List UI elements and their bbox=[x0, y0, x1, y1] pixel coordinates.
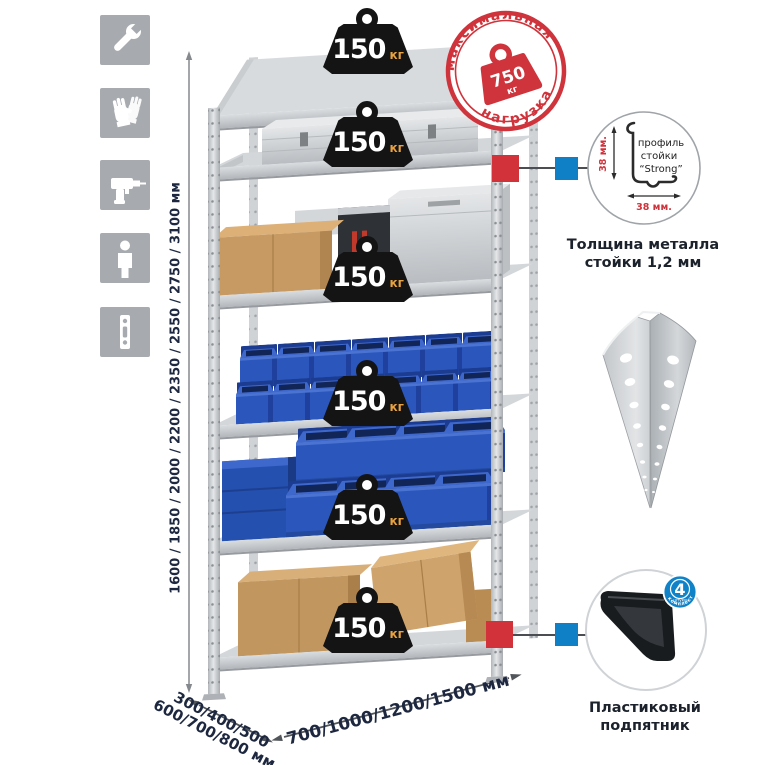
weight-unit: кг bbox=[389, 276, 403, 290]
profile-caption-line2: стойки 1,2 мм bbox=[558, 254, 728, 272]
weight-unit: кг bbox=[389, 48, 403, 62]
kit-count-value: 4 bbox=[674, 580, 685, 599]
weight-unit: кг bbox=[389, 514, 403, 528]
weight-value: 150 bbox=[332, 386, 385, 417]
shelf-load-badge: 150 кг bbox=[323, 474, 413, 541]
blue-bin bbox=[458, 367, 496, 411]
shelf-load-badge: 150 кг bbox=[323, 236, 413, 303]
shelf-load-badge: 150 кг bbox=[323, 8, 413, 75]
weight-value: 150 bbox=[332, 34, 385, 65]
blue-bin bbox=[421, 369, 459, 413]
weight-value: 150 bbox=[332, 262, 385, 293]
shelf-load-badge: 150 кг bbox=[323, 101, 413, 168]
height-dimension-line bbox=[186, 51, 192, 693]
weight-value: 150 bbox=[332, 613, 385, 644]
weight-body: 150 кг bbox=[323, 603, 413, 653]
profile-label-2: стойки bbox=[641, 151, 677, 162]
corner-post-left-face bbox=[603, 317, 650, 508]
weight-unit: кг bbox=[389, 627, 403, 641]
weight-unit: кг bbox=[389, 400, 403, 414]
height-dimension-label: 1600 / 1850 / 2000 / 2200 / 2350 / 2550 … bbox=[169, 182, 184, 594]
shelf-load-badge: 150 кг bbox=[323, 587, 413, 654]
weight-unit: кг bbox=[389, 141, 403, 155]
profile-dim-v-label: 38 мм. bbox=[598, 136, 609, 172]
shelving-rack-infographic: 1600 / 1850 / 2000 / 2200 / 2350 / 2550 … bbox=[0, 0, 765, 765]
profile-label-3: “Strong” bbox=[639, 164, 682, 175]
blue-bin-large bbox=[433, 469, 495, 529]
profile-caption-line1: Толщина металла bbox=[558, 236, 728, 254]
blue-marker-top bbox=[555, 157, 578, 180]
weight-body: 150 кг bbox=[323, 490, 413, 540]
shelf-load-badge: 150 кг bbox=[323, 360, 413, 427]
corner-post-graphic bbox=[593, 300, 708, 520]
profile-caption: Толщина металла стойки 1,2 мм bbox=[558, 236, 728, 272]
blue-bin bbox=[236, 380, 274, 424]
max-load-stamp: 750 кг максимальная нагрузка bbox=[441, 6, 571, 136]
weight-value: 150 bbox=[332, 127, 385, 158]
profile-label-1: профиль bbox=[638, 138, 684, 149]
weight-body: 150 кг bbox=[323, 117, 413, 167]
blue-bin bbox=[273, 378, 311, 422]
red-marker-bottom bbox=[486, 621, 513, 648]
profile-dim-h-label: 38 мм. bbox=[636, 202, 672, 213]
weight-body: 150 кг bbox=[323, 376, 413, 426]
weight-value: 150 bbox=[332, 500, 385, 531]
foot-caption: Пластиковый подпятник bbox=[560, 699, 730, 735]
red-marker-top bbox=[492, 155, 519, 182]
blue-marker-bottom bbox=[555, 623, 578, 646]
weight-body: 150 кг bbox=[323, 252, 413, 302]
profile-detail-circle: 38 мм. 38 мм. профиль стойки “Strong” bbox=[584, 109, 704, 229]
weight-body: 150 кг bbox=[323, 24, 413, 74]
foot-caption-line2: подпятник bbox=[560, 717, 730, 735]
plastic-foot-detail: 4 штуки в комплекте bbox=[583, 566, 713, 696]
foot-caption-line1: Пластиковый bbox=[560, 699, 730, 717]
